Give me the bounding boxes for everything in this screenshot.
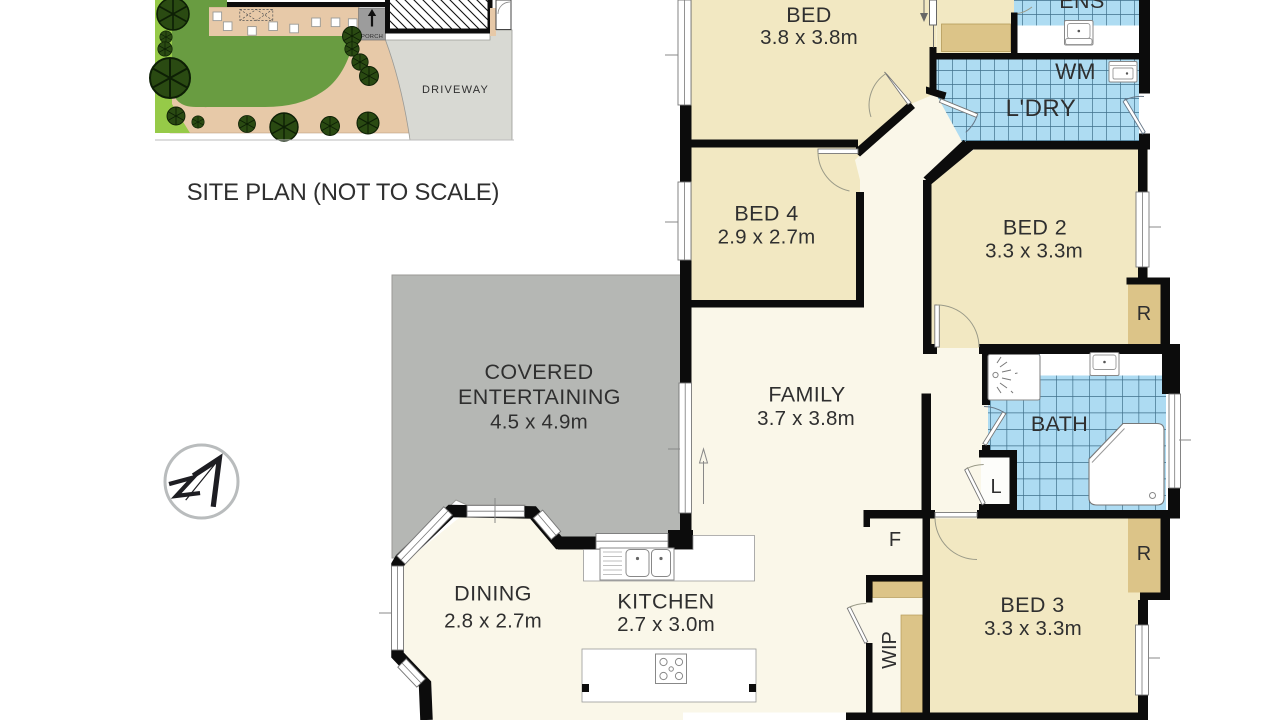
svg-text:ENTERTAINING: ENTERTAINING <box>458 385 621 409</box>
svg-text:PORCH: PORCH <box>361 34 383 40</box>
svg-text:2.9 x 2.7m: 2.9 x 2.7m <box>718 226 816 249</box>
svg-text:3.3 x 3.3m: 3.3 x 3.3m <box>984 617 1082 640</box>
svg-text:L'DRY: L'DRY <box>1006 95 1077 122</box>
svg-text:COVERED: COVERED <box>484 360 593 384</box>
svg-text:4.5 x 4.9m: 4.5 x 4.9m <box>490 411 588 434</box>
svg-text:DINING: DINING <box>454 582 532 606</box>
svg-text:ENS: ENS <box>1059 0 1104 13</box>
svg-text:3.7 x 3.8m: 3.7 x 3.8m <box>757 407 855 430</box>
svg-text:BED: BED <box>786 3 831 27</box>
svg-text:2.8 x 2.7m: 2.8 x 2.7m <box>444 610 542 633</box>
svg-text:BATH: BATH <box>1031 412 1088 436</box>
svg-text:F: F <box>889 529 901 551</box>
svg-text:BED 3: BED 3 <box>1000 593 1064 617</box>
svg-text:FAMILY: FAMILY <box>768 383 845 407</box>
svg-text:3.8 x 3.8m: 3.8 x 3.8m <box>760 26 858 49</box>
svg-text:WM: WM <box>1055 59 1096 84</box>
svg-text:R: R <box>1137 543 1151 565</box>
svg-text:WIP: WIP <box>879 631 901 669</box>
svg-text:L: L <box>990 476 1001 498</box>
svg-text:DRIVEWAY: DRIVEWAY <box>422 84 489 96</box>
svg-text:2.7 x 3.0m: 2.7 x 3.0m <box>617 613 715 636</box>
svg-text:SITE PLAN (NOT TO SCALE): SITE PLAN (NOT TO SCALE) <box>187 179 500 206</box>
svg-text:BED 4: BED 4 <box>734 202 798 226</box>
svg-text:BED 2: BED 2 <box>1003 216 1067 240</box>
svg-text:R: R <box>1137 303 1151 325</box>
svg-text:3.3 x 3.3m: 3.3 x 3.3m <box>985 240 1083 263</box>
svg-text:KITCHEN: KITCHEN <box>617 590 714 614</box>
